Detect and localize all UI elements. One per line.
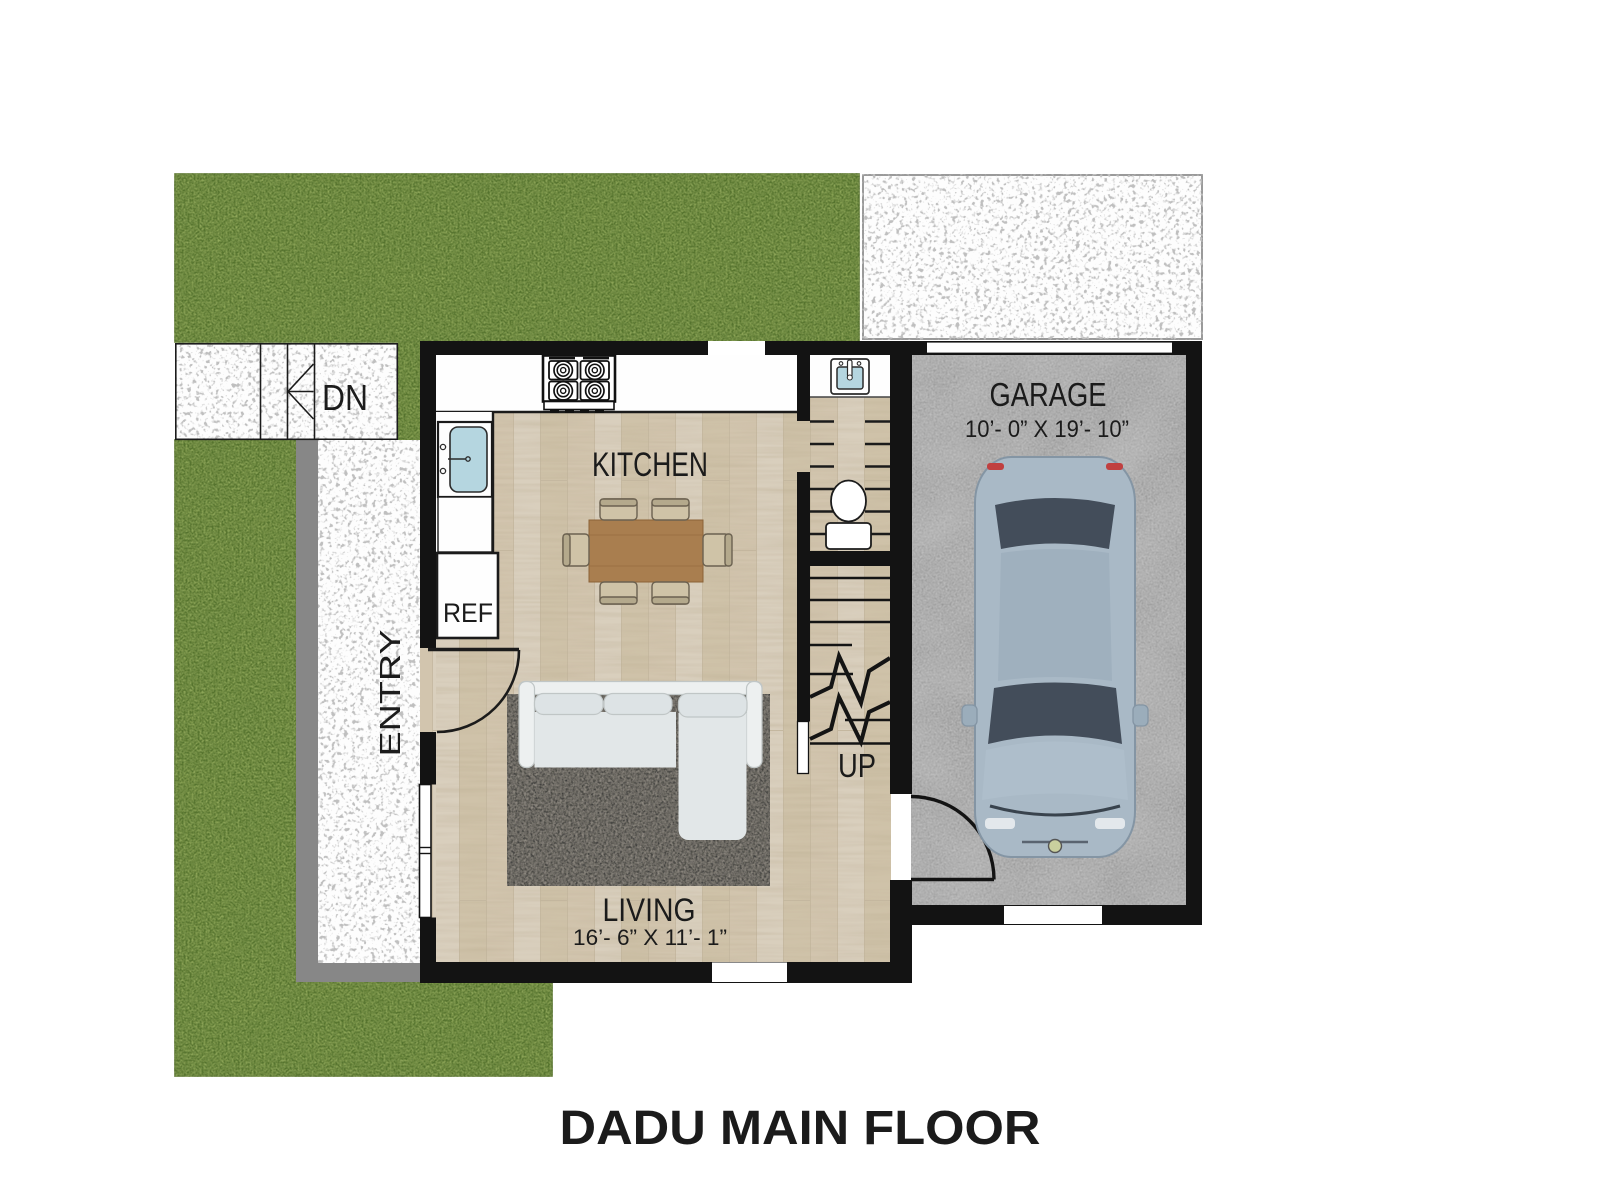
svg-text:10’- 0” X 19’- 10”: 10’- 0” X 19’- 10” bbox=[965, 416, 1129, 443]
svg-text:LIVING: LIVING bbox=[603, 892, 696, 928]
svg-text:ENTRY: ENTRY bbox=[375, 630, 407, 757]
svg-text:KITCHEN: KITCHEN bbox=[592, 446, 708, 484]
svg-text:16’- 6” X 11’- 1”: 16’- 6” X 11’- 1” bbox=[573, 925, 727, 950]
svg-text:UP: UP bbox=[838, 747, 876, 784]
svg-text:DN: DN bbox=[322, 377, 368, 418]
svg-text:REF: REF bbox=[443, 598, 493, 628]
svg-text:DADU MAIN FLOOR: DADU MAIN FLOOR bbox=[560, 1102, 1041, 1155]
svg-text:GARAGE: GARAGE bbox=[990, 376, 1107, 413]
